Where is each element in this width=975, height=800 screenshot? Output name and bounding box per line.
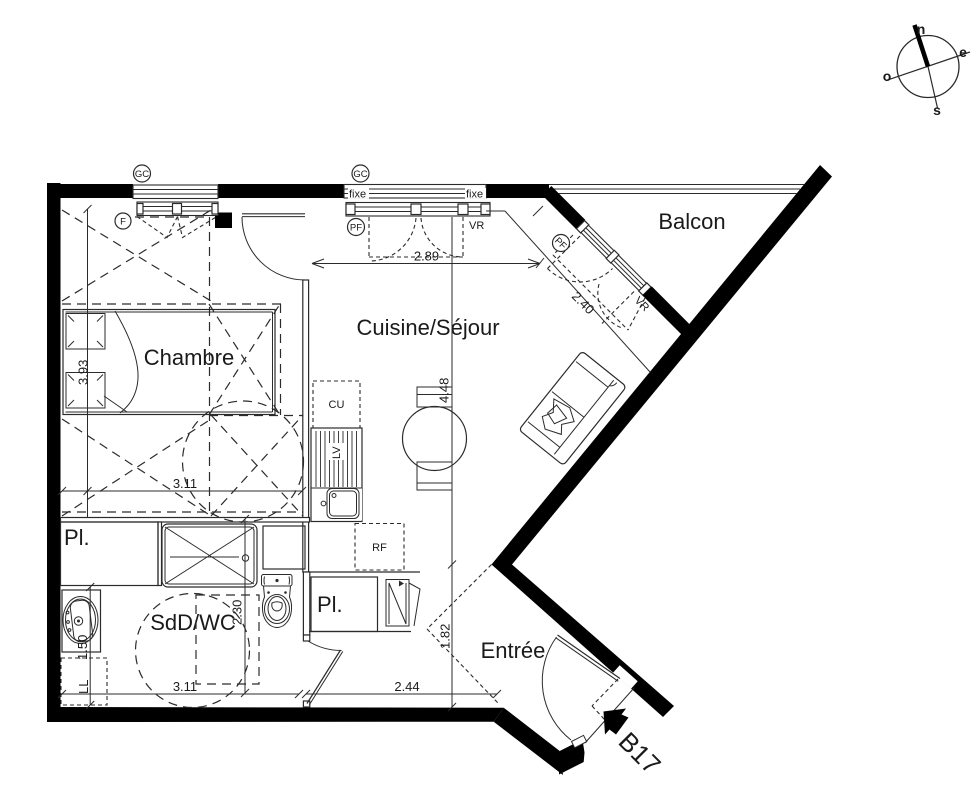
svg-text:2.30: 2.30	[230, 600, 245, 625]
svg-text:s: s	[933, 102, 941, 118]
svg-text:LV: LV	[331, 446, 343, 459]
svg-text:o: o	[883, 68, 892, 84]
svg-text:RF: RF	[372, 542, 387, 554]
svg-text:GC: GC	[135, 169, 149, 180]
svg-text:e: e	[959, 44, 967, 60]
svg-text:1.50: 1.50	[75, 635, 90, 660]
svg-text:1.82: 1.82	[438, 624, 453, 649]
svg-text:2.89: 2.89	[414, 249, 439, 264]
svg-text:GC: GC	[353, 169, 367, 180]
svg-text:LL: LL	[76, 680, 91, 694]
svg-text:fixe: fixe	[349, 189, 366, 201]
svg-text:Entrée: Entrée	[481, 638, 546, 663]
svg-text:3.93: 3.93	[76, 360, 91, 385]
svg-text:F: F	[120, 217, 126, 228]
svg-text:SdD/WC: SdD/WC	[150, 610, 236, 635]
svg-text:Chambre: Chambre	[144, 345, 234, 370]
svg-text:2.44: 2.44	[394, 679, 419, 694]
svg-text:Pl.: Pl.	[317, 592, 343, 617]
svg-text:CU: CU	[329, 399, 345, 411]
svg-text:4.48: 4.48	[437, 378, 452, 403]
svg-text:Cuisine/Séjour: Cuisine/Séjour	[356, 315, 499, 340]
svg-text:Balcon: Balcon	[658, 209, 725, 234]
svg-text:VR: VR	[469, 220, 484, 232]
svg-text:n: n	[917, 21, 926, 37]
svg-text:fixe: fixe	[466, 189, 483, 201]
svg-text:3.11: 3.11	[173, 679, 197, 694]
svg-text:3.11: 3.11	[173, 476, 197, 491]
svg-text:Pl.: Pl.	[64, 525, 90, 550]
svg-text:PF: PF	[350, 223, 362, 234]
